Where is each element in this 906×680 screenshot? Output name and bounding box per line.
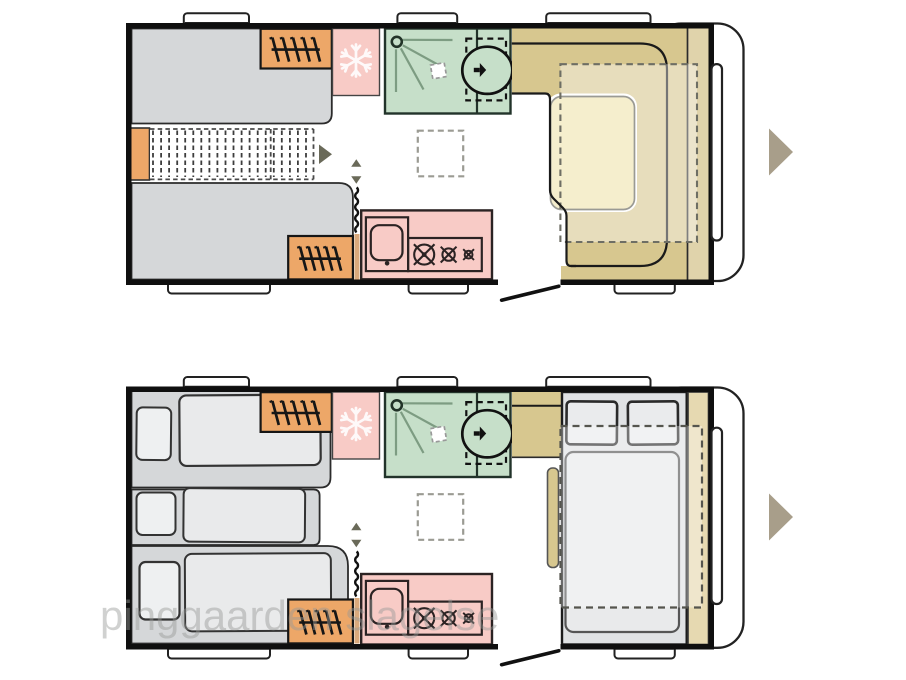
svg-text:pinggaarden slagelse: pinggaarden slagelse bbox=[100, 592, 499, 639]
